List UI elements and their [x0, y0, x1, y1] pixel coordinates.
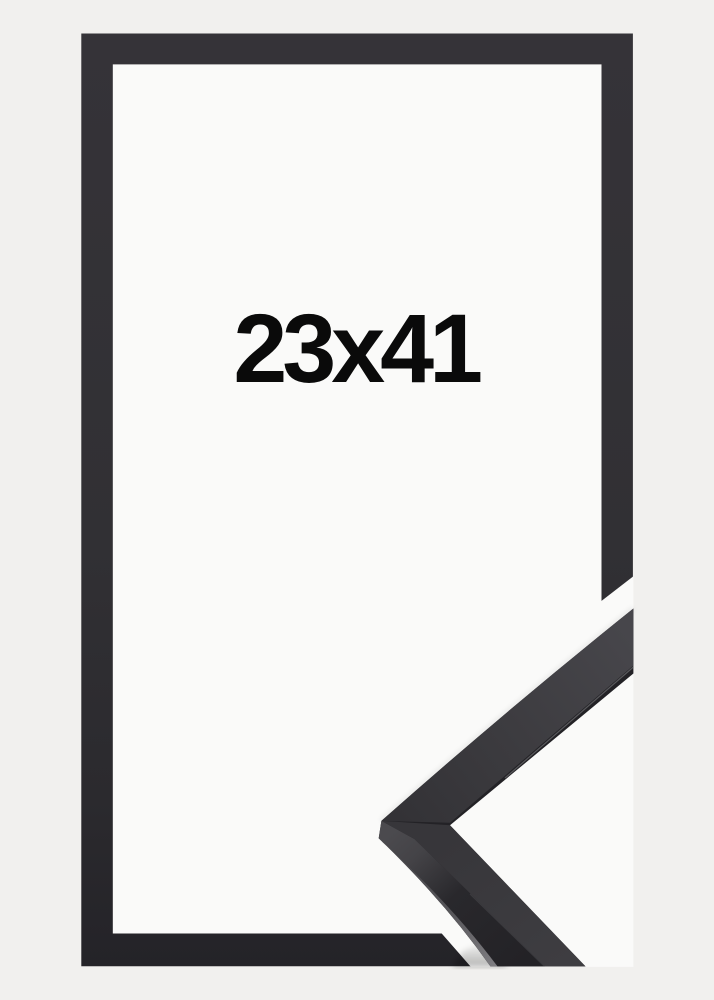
svg-text:23x41: 23x41 [233, 294, 481, 403]
